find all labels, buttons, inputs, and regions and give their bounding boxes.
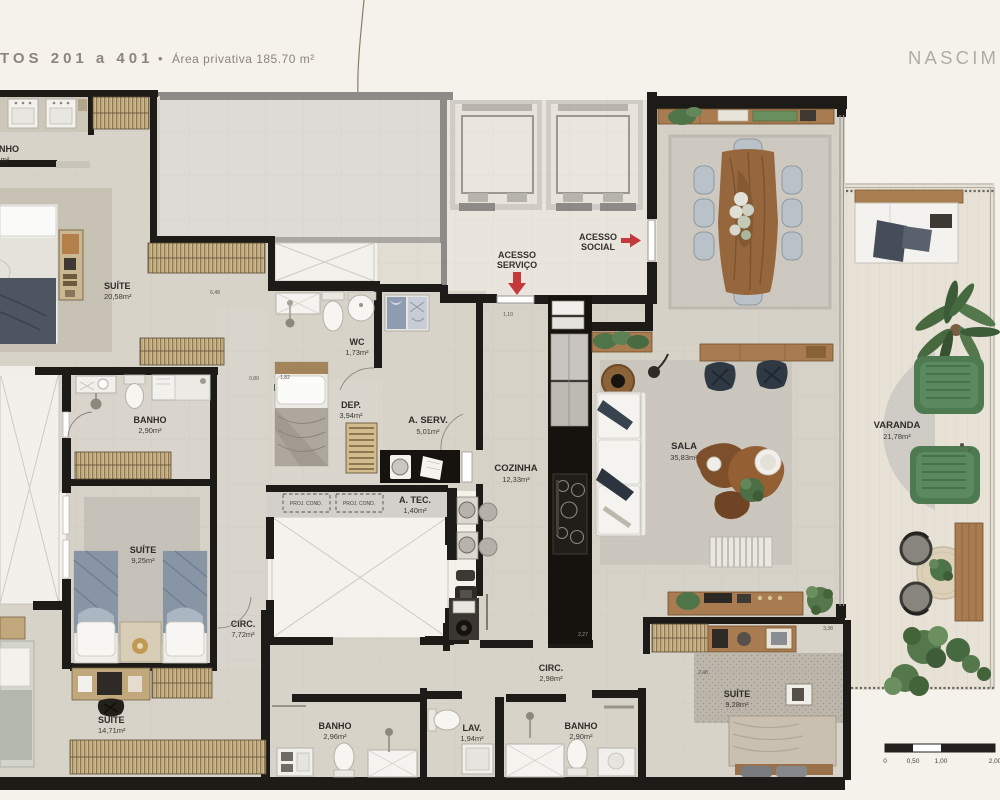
svg-text:SUÍTE: SUÍTE	[724, 689, 751, 699]
svg-text:BANHO: BANHO	[319, 721, 352, 731]
svg-text:0,50: 0,50	[907, 758, 920, 765]
svg-text:LAV.: LAV.	[462, 723, 481, 733]
svg-text:21,78m²: 21,78m²	[883, 432, 911, 441]
svg-text:2,00: 2,00	[989, 758, 1000, 765]
svg-text:•: •	[158, 51, 163, 66]
svg-text:BANHO: BANHO	[565, 721, 598, 731]
svg-text:9,25m²: 9,25m²	[131, 556, 155, 565]
svg-text:SALA: SALA	[671, 441, 697, 452]
svg-text:1,94m²: 1,94m²	[460, 734, 484, 743]
svg-text:20,58m²: 20,58m²	[104, 292, 132, 301]
svg-text:9,28m²: 9,28m²	[725, 700, 749, 709]
svg-text:SUÍTE: SUÍTE	[98, 715, 125, 725]
svg-text:14,71m²: 14,71m²	[98, 726, 126, 735]
svg-text:2,98m²: 2,98m²	[539, 674, 563, 683]
svg-text:35,83m²: 35,83m²	[670, 453, 698, 462]
svg-text:d: d	[968, 448, 971, 454]
svg-text:12,33m²: 12,33m²	[502, 475, 530, 484]
svg-text:1,82: 1,82	[280, 375, 290, 381]
svg-text:Área privativa 185.70 m²: Área privativa 185.70 m²	[172, 51, 315, 66]
svg-text:1,00: 1,00	[935, 758, 948, 765]
svg-text:2,90m²: 2,90m²	[138, 426, 162, 435]
svg-text:COZINHA: COZINHA	[494, 463, 537, 474]
svg-text:CIRC.: CIRC.	[539, 663, 564, 673]
svg-text:1,10: 1,10	[503, 312, 513, 318]
svg-text:1,40m²: 1,40m²	[403, 506, 427, 515]
svg-text:PROJ. COND.: PROJ. COND.	[343, 501, 375, 507]
svg-text:0,80: 0,80	[249, 376, 259, 382]
svg-text:2,27: 2,27	[578, 632, 588, 638]
svg-text:2,48: 2,48	[698, 670, 708, 676]
svg-text:SUÍTE: SUÍTE	[130, 545, 157, 555]
svg-text:DEP.: DEP.	[341, 400, 361, 410]
svg-text:5,01m²: 5,01m²	[416, 427, 440, 436]
svg-text:7,72m²: 7,72m²	[231, 630, 255, 639]
svg-text:TOS 201 a 401: TOS 201 a 401	[0, 50, 153, 67]
svg-text:PROJ. COND.: PROJ. COND.	[290, 501, 322, 507]
svg-text:A. TEC.: A. TEC.	[399, 495, 431, 505]
svg-text:2,96m²: 2,96m²	[323, 732, 347, 741]
svg-text:1,73m²: 1,73m²	[345, 348, 369, 357]
svg-text:6,48: 6,48	[210, 290, 220, 296]
svg-text:3,94m²: 3,94m²	[339, 411, 363, 420]
svg-text:SUÍTE: SUÍTE	[104, 281, 131, 291]
svg-text:3,04m²: 3,04m²	[0, 155, 10, 164]
svg-text:A. SERV.: A. SERV.	[408, 415, 448, 426]
svg-text:2,90m²: 2,90m²	[569, 732, 593, 741]
svg-text:VARANDA: VARANDA	[874, 420, 921, 431]
svg-text:3,38: 3,38	[823, 626, 833, 632]
svg-text:BANHO: BANHO	[0, 144, 19, 154]
svg-text:WC: WC	[350, 337, 365, 347]
svg-text:0: 0	[883, 758, 887, 765]
svg-text:BANHO: BANHO	[134, 415, 167, 425]
svg-text:NASCIMENTO: NASCIMENTO	[908, 47, 1000, 68]
